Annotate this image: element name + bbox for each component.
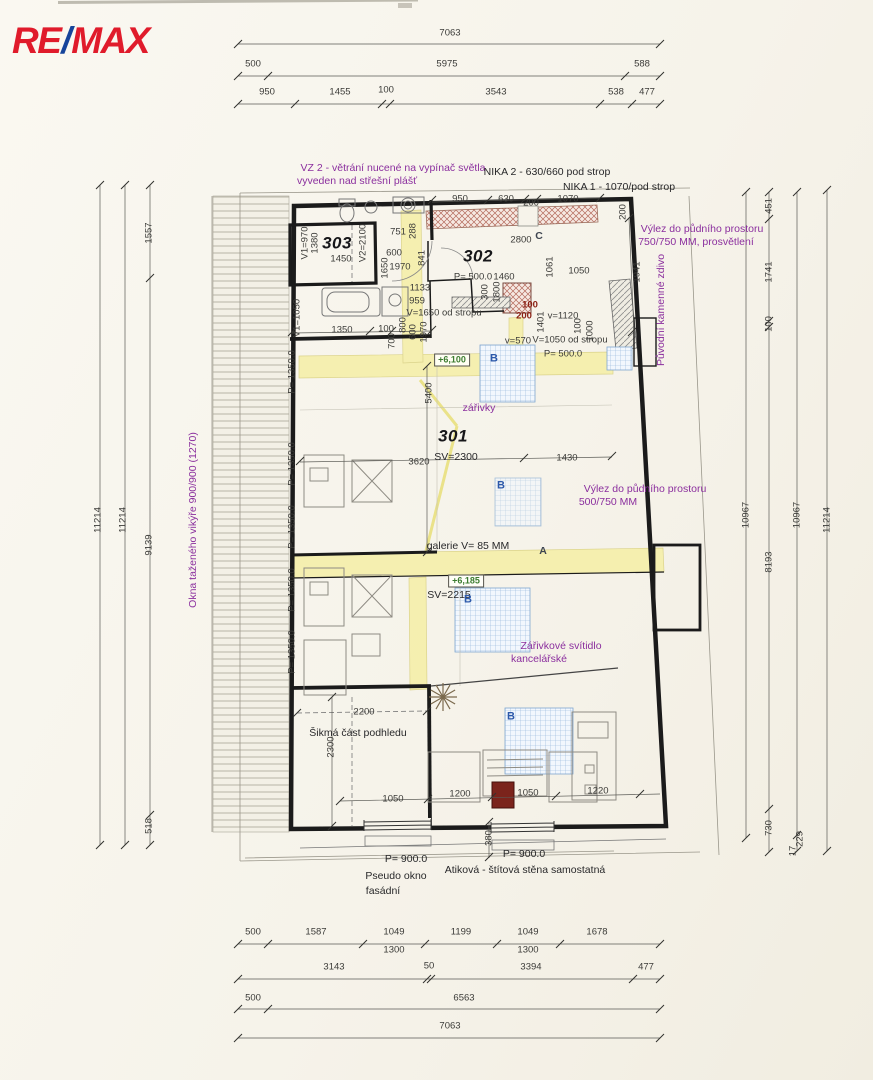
section-letter: A [539,546,547,557]
dimension-label: 3394 [520,962,541,972]
dimension-label: 1220 [587,786,608,796]
dimension-label: 1557 [144,222,154,243]
dimension-label: 6563 [453,993,474,1003]
dimension-label: 1741 [764,261,774,282]
dimension-label: 8193 [764,551,774,572]
dimension-label: 11214 [118,507,128,533]
dimension-label: V=1650 od stropu [406,308,481,318]
dimension-label: 1678 [586,927,607,937]
dimension-label: 1970 [389,262,410,272]
dimension-label: 1970 [419,321,429,342]
dimension-label: 1380 [310,232,320,253]
dimension-label: P= 500.0 [454,272,492,282]
dimension-label: 451 [764,198,774,214]
dimension-label: 518 [144,818,154,834]
dimension-label: 477 [639,87,655,97]
colored-annotation: Výlez do půdního prostoru [641,224,764,235]
colored-annotation: zářivky [463,403,496,414]
dimension-label: 7063 [439,1021,460,1031]
dimension-label: 1460 [493,272,514,282]
dimension-label: 588 [634,59,650,69]
dimension-label: P= 1350.0 [287,568,297,612]
dimension-label: 11214 [93,507,103,533]
dimension-label: 959 [409,296,425,306]
dimension-label: 3620 [408,457,429,467]
dimension-label: 5975 [436,59,457,69]
annotation-text: fasádní [366,886,400,897]
colored-annotation: Výlez do půdního prostoru [584,484,707,495]
colored-annotation: Okna taženého vikýře 900/900 (1270) [188,432,199,608]
dimension-label: 5400 [424,382,434,403]
dimension-label: 2200 [353,707,374,717]
level-elevation-badge: +6,100 [434,354,470,367]
dimension-label: 477 [638,962,654,972]
dimension-label: 1300 [517,945,538,955]
dimension-label: 50 [424,961,435,971]
dimension-label: 1049 [383,927,404,937]
skylight-letter: B [490,354,498,365]
dimension-label: 1050 [517,788,538,798]
dimension-label: v=570 [505,336,531,346]
plan-labels-layer: 7063500597558895014551003543538477500158… [0,0,873,1080]
dimension-label: P= 1350.0 [287,630,297,674]
dimension-label: 300 [480,284,490,300]
dimension-label: 600 [386,248,402,258]
colored-annotation: Původní kamenné zdivo [656,254,667,366]
dimension-label: 288 [408,223,418,239]
section-letter: C [535,231,543,242]
level-elevation-badge: +6,185 [448,575,484,588]
dimension-label: 17 [788,846,798,857]
colored-annotation: vyveden nad střešní plášť [297,176,417,187]
dimension-label: 1650 [380,257,390,278]
dimension-label: 751 [390,227,406,237]
dimension-label: 10967 [741,502,751,528]
dimension-label: 2300 [326,736,336,757]
dimension-label: 1200 [449,789,470,799]
dimension-label: P= 500.0 [544,349,582,359]
dimension-label: 730 [764,820,774,836]
annotation-text: galerie V= 85 MM [427,541,510,552]
dimension-label: 1070 [557,194,578,204]
colored-annotation: Zářivkové svítidlo [520,641,601,652]
dimension-label: V=1050 od stropu [532,335,607,345]
scanned-floor-plan-page: RE/MAX 706350059755889501455100354353847… [0,0,873,1080]
dimension-label: 950 [259,87,275,97]
dimension-label: 2800 [510,235,531,245]
dimension-label: 500 [245,59,261,69]
red-dimension-label: 200 [516,311,532,321]
colored-annotation: 500/750 MM [579,497,637,508]
dimension-label: 500 [245,927,261,937]
dimension-label: 100 [764,316,774,332]
dimension-label: 1941 [632,261,642,282]
dimension-label: 841 [417,250,427,266]
annotation-text: Šikmá část podhledu [309,728,406,739]
dimension-label: 1350 [331,325,352,335]
dimension-label: 1061 [545,256,555,277]
dimension-label: 1450 [330,254,351,264]
dimension-label: 1133 [410,283,430,293]
dimension-label: P= 1350.0 [287,505,297,549]
room-number: 301 [438,428,468,445]
dimension-label: 10967 [792,502,802,528]
dimension-label: 9139 [144,534,154,555]
dimension-label: 200 [523,198,539,208]
dimension-label: 1430 [556,453,577,463]
dimension-label: 950 [452,194,468,204]
dimension-label: 3143 [323,962,344,972]
annotation-text: Pseudo okno [365,871,426,882]
dimension-label: V2=2100 [358,224,368,262]
annotation-text: Atiková - štítová stěna samostatná [445,865,606,876]
dimension-label: P= 1350.0 [287,442,297,486]
annotation-text: NIKA 1 - 1070/pod strop [563,182,675,193]
dimension-label: P= 1350.0 [287,350,297,394]
dimension-label: 100 [378,85,394,95]
red-dimension-label: 100 [522,300,538,310]
dimension-label: 1587 [305,927,326,937]
annotation-text: P= 900.0 [503,849,545,860]
room-number: 302 [463,248,493,265]
skylight-letter: B [507,712,515,723]
dimension-label: 200 [618,204,628,220]
dimension-label: 1050 [568,266,589,276]
dimension-label: 1050 [382,794,403,804]
dimension-label: 1300 [383,945,404,955]
annotation-text: SV=2300 [434,452,478,463]
dimension-label: 229 [795,831,805,847]
dimension-label: 380 [484,830,494,846]
dimension-label: 1049 [517,927,538,937]
room-number: 303 [322,235,352,252]
dimension-label: 1800 [492,281,502,302]
dimension-label: 100 [573,318,583,334]
dimension-label: 3543 [485,87,506,97]
dimension-label: 538 [608,87,624,97]
dimension-label: 11214 [822,507,832,533]
skylight-letter: B [497,481,505,492]
dimension-label: 1401 [536,311,546,332]
colored-annotation: VZ 2 - větrání nucené na vypínač světla [300,163,485,174]
dimension-label: 7063 [439,28,460,38]
skylight-letter: B [464,595,472,606]
dimension-label: 600 [408,324,418,340]
annotation-text: NIKA 2 - 630/660 pod strop [484,167,611,178]
annotation-text: P= 900.0 [385,854,427,865]
colored-annotation: kancelářské [511,654,567,665]
dimension-label: V1=1050 [292,299,302,337]
dimension-label: 630 [498,194,514,204]
dimension-label: 1455 [329,87,350,97]
dimension-label: 1199 [451,927,471,937]
dimension-label: 700 [387,333,397,349]
colored-annotation: 750/750 MM, prosvětlení [638,237,754,248]
dimension-label: 500 [245,993,261,1003]
